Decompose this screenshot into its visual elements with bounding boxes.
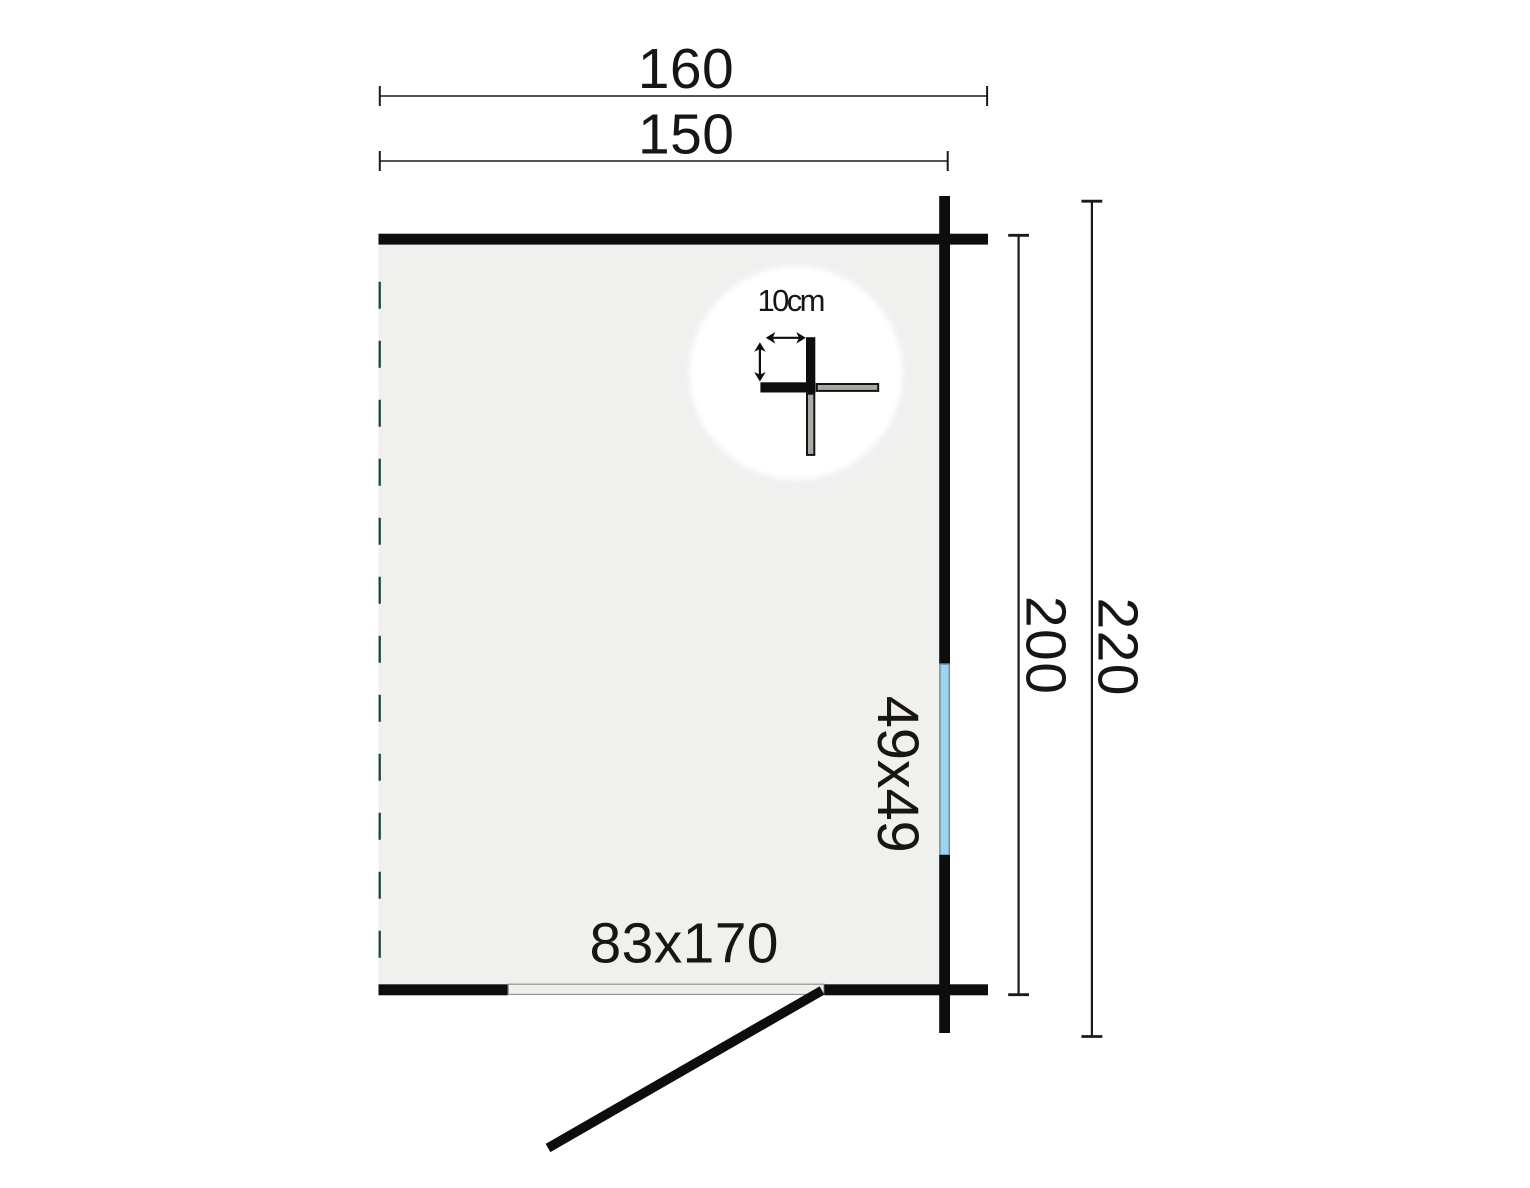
svg-text:200: 200 (1014, 596, 1078, 694)
svg-text:83x170: 83x170 (590, 911, 779, 975)
svg-text:150: 150 (638, 103, 734, 167)
svg-text:10cm: 10cm (758, 283, 826, 318)
svg-text:160: 160 (638, 37, 734, 101)
svg-text:49x49: 49x49 (865, 696, 930, 853)
svg-text:220: 220 (1086, 598, 1150, 696)
